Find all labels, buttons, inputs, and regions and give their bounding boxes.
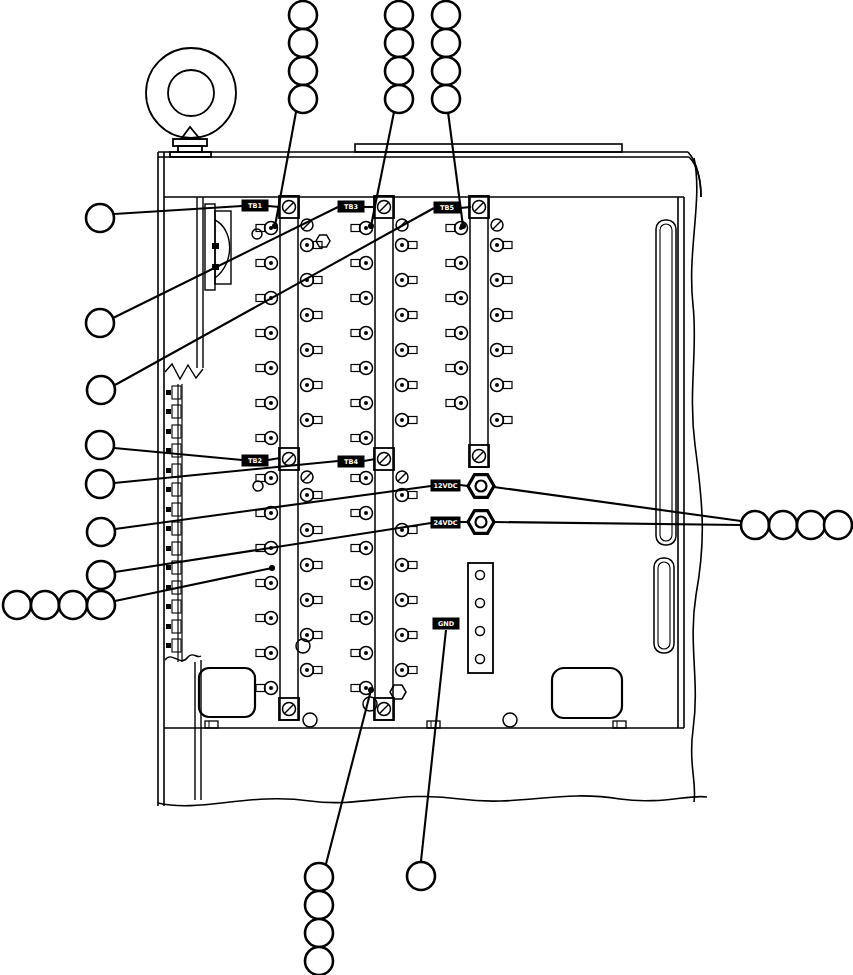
din-terminal-block [172,620,181,633]
terminal-strip-1-terminal-lug-tab [313,667,322,674]
terminal-strip-1-terminal-center [269,436,273,440]
terminal-strip-1-screw-slot [303,473,311,481]
slot-upper [656,220,676,545]
leader-line [326,690,371,864]
label-text-tb3: TB3 [344,203,358,211]
callout-balloon-left-singles [87,561,115,589]
terminal-strip-2-terminal-lug-tab [408,382,417,389]
leader-attach-dot [368,687,374,693]
door-hinge [205,204,231,290]
terminal-strip-1-terminal-center [305,348,309,352]
ground-plate-hole [476,627,485,636]
terminal-strip-2-terminal-lug-tab [351,260,360,267]
terminal-strip-1-terminal-lug-tab [256,260,265,267]
terminal-strip-3-terminal-center [459,261,463,265]
callout-balloon-top-column-3 [432,85,460,113]
callout-balloon-right-row [797,511,825,539]
top-lip [355,144,622,152]
terminal-strip-3-terminal-center [459,296,463,300]
callout-balloon-bottom-column [305,947,333,975]
leader-line [115,208,434,385]
terminal-strip-1-terminal-center [269,261,273,265]
terminal-strip-1-mount-screw-slot [285,455,294,464]
terminal-strip-1-terminal-center [305,383,309,387]
terminal-strip-2-screw-slot [398,473,406,481]
terminal-strip-2-terminal-lug-tab [351,580,360,587]
terminal-strip-2-terminal-lug-tab [351,475,360,482]
break-wave-small [165,655,201,661]
break-line-bottom [158,796,707,806]
terminal-strip-3-terminal-lug-tab [503,242,512,249]
din-terminal-marker [166,409,171,414]
terminal-strip-2-terminal-center [364,261,368,265]
leader-line [460,207,471,208]
wiring-diagram: TB1TB3TB5TB2TB412VDC24VDCGND [0,0,853,975]
terminal-strip-1-terminal-lug-tab [313,382,322,389]
terminal-strip-2-terminal-lug-tab [351,330,360,337]
callout-balloon-top-column-1 [289,1,317,29]
callout-balloon-bottom-column [305,919,333,947]
terminal-strip-1-terminal-lug-tab [256,295,265,302]
terminal-strip-3-terminal-lug-tab [446,295,455,302]
terminal-strip-2-terminal-lug-tab [351,650,360,657]
callout-balloon-top-column-3 [432,57,460,85]
terminal-strip-3-mount-screw-slot [475,203,484,212]
callout-balloon-top-column-1 [289,29,317,57]
leader-line [114,206,242,214]
din-terminal-marker [166,604,171,609]
terminal-strip-2-terminal-lug-tab [408,417,417,424]
terminal-strip-3-terminal-lug-tab [503,417,512,424]
terminal-strip-2-terminal-center [400,278,404,282]
leader-attach-dot [269,565,275,571]
terminal-strip-1-terminal-lug-tab [313,277,322,284]
terminal-strip-2-mount-screw-slot [380,705,389,714]
terminal-strip-1-terminal-lug-tab [256,400,265,407]
leader-attach-dot [272,223,278,229]
panel-screw-hole [252,229,262,239]
terminal-strip-3-terminal-lug-tab [503,277,512,284]
terminal-strip-2-terminal-center [364,401,368,405]
terminal-strip-2-terminal-center [400,418,404,422]
terminal-strip-2-terminal-lug-tab [351,615,360,622]
terminal-strip-2-terminal-lug-tab [408,312,417,319]
callout-balloon-top-column-3 [432,1,460,29]
terminal-strip-2-mount-screw-slot [380,455,389,464]
terminal-strip-2-terminal-lug-tab [408,597,417,604]
terminal-strip-2-terminal-center [364,581,368,585]
callout-balloon-bottom-column [305,863,333,891]
terminal-strip-2-terminal-center [364,436,368,440]
leader-line [275,112,296,226]
terminal-strip-1-terminal-center [269,476,273,480]
callout-balloon-top-column-3 [432,29,460,57]
leader-attach-dot [368,223,374,229]
terminal-strip-1-terminal-center [269,581,273,585]
terminal-strip-3-terminal-lug-tab [446,400,455,407]
callout-balloon-top-column-2 [385,57,413,85]
callout-balloon-left-row [87,591,115,619]
terminal-strip-3-terminal-lug-tab [503,347,512,354]
terminal-strip-2-mount-screw-slot [380,203,389,212]
terminal-strip-1-terminal-lug-tab [256,580,265,587]
slot-lower [654,558,674,653]
callout-balloon-left-singles [86,431,114,459]
terminal-strip-3-mount-screw-slot [475,452,484,461]
terminal-strip-3-screw-slot [493,221,501,229]
terminal-strip-1-terminal-center [305,668,309,672]
callout-balloon-top-column-1 [289,85,317,113]
cutout-right-rounded [552,668,622,718]
terminal-strip-2-terminal-center [364,226,368,230]
ground-plate-hole [476,571,485,580]
voltage-jack-hex [468,475,494,498]
din-terminal-marker [166,468,171,473]
terminal-strip-3-terminal-lug-tab [503,382,512,389]
terminal-strip-2-terminal-lug-tab [408,242,417,249]
terminal-strip-2-terminal-lug-tab [351,435,360,442]
din-terminal-block [172,405,181,418]
terminal-strip-1-terminal-lug-tab [256,330,265,337]
terminal-strip-2-terminal-lug-tab [408,632,417,639]
terminal-strip-2-terminal-center [364,296,368,300]
terminal-strip-3-terminal-lug-tab [446,260,455,267]
terminal-strip-1-terminal-lug-tab [313,632,322,639]
voltage-jack-hex [468,511,494,534]
terminal-strip-1-terminal-lug-tab [256,650,265,657]
terminal-strip-2-terminal-center [400,598,404,602]
terminal-strip-2-terminal-center [400,668,404,672]
ground-plate-hole [476,599,485,608]
terminal-strip-2-terminal-lug-tab [408,347,417,354]
label-text-tb2: TB2 [248,457,262,465]
terminal-strip-1-terminal-lug-tab [256,615,265,622]
break-line-right [691,158,702,802]
din-terminal-block [172,639,181,652]
callout-balloon-bottom-single [407,862,435,890]
din-terminal-marker [166,546,171,551]
callout-balloon-left-singles [87,518,115,546]
callout-balloon-left-row [3,591,31,619]
terminal-strip-2-terminal-lug-tab [408,277,417,284]
leader-line [421,630,446,861]
callout-balloon-top-column-2 [385,85,413,113]
wiring-diagram-page: TB1TB3TB5TB2TB412VDC24VDCGND [0,0,853,975]
terminal-strip-1-terminal-center [305,243,309,247]
callout-balloon-right-row [824,511,852,539]
din-terminal-marker [166,565,171,570]
terminal-strip-2-terminal-center [364,511,368,515]
terminal-strip-1-terminal-lug-tab [256,365,265,372]
terminal-strip-2-terminal-lug-tab [408,562,417,569]
din-terminal-block [172,425,181,438]
terminal-strip-2-terminal-center [364,546,368,550]
terminal-strip-1-terminal-center [305,313,309,317]
callout-balloon-right-row [741,511,769,539]
terminal-strip-3-bar [470,196,488,467]
callout-balloon-right-row [769,511,797,539]
terminal-strip-3-terminal-center [495,243,499,247]
din-terminal-marker [166,487,171,492]
leader-line [494,522,741,525]
panel-screw-hole [303,713,317,727]
terminal-strip-2-terminal-center [364,616,368,620]
terminal-strip-1-terminal-lug-tab [256,685,265,692]
terminal-strip-1-terminal-lug-tab [313,347,322,354]
leader-line [115,568,272,601]
terminal-strip-2-terminal-lug-tab [408,667,417,674]
terminal-strip-1-terminal-lug-tab [313,417,322,424]
terminal-strip-3-terminal-lug-tab [446,225,455,232]
terminal-strip-2-terminal-center [400,313,404,317]
callout-balloon-top-column-2 [385,29,413,57]
terminal-strip-2-terminal-center [400,348,404,352]
terminal-strip-3-terminal-center [495,278,499,282]
terminal-strip-2-terminal-lug-tab [408,492,417,499]
rail-tab [427,721,440,728]
din-terminal-block [172,542,181,555]
leader-attach-dot [460,223,466,229]
terminal-strip-3-terminal-center [495,418,499,422]
callout-balloon-top-column-1 [289,57,317,85]
label-text-gnd: GND [438,620,455,628]
rail-tab [613,721,626,728]
terminal-strip-1-terminal-lug-tab [256,435,265,442]
voltage-jack-center [476,517,487,528]
terminal-strip-3-terminal-center [495,383,499,387]
callout-balloon-left-singles [87,376,115,404]
terminal-strip-2-terminal-center [400,563,404,567]
label-text-tb5: TB5 [440,204,454,212]
terminal-strip-1-terminal-center [305,563,309,567]
terminal-strip-3-terminal-lug-tab [446,365,455,372]
panel-screw-hole [253,481,263,491]
terminal-strip-2-terminal-lug-tab [351,295,360,302]
din-terminal-block [172,483,181,496]
din-terminal-block [172,600,181,613]
din-terminal-block [172,464,181,477]
label-text-tb1: TB1 [248,202,262,210]
door-edge [165,197,203,800]
terminal-strip-1-terminal-center [305,633,309,637]
din-terminal-marker [166,526,171,531]
voltage-jack-center [476,481,487,492]
terminal-strip-2-terminal-center [400,493,404,497]
terminal-strip-2-terminal-center [400,383,404,387]
din-terminal-marker [166,643,171,648]
terminal-strip-1-terminal-center [269,331,273,335]
terminal-strip-3-terminal-lug-tab [446,330,455,337]
terminal-strip-1-terminal-center [269,511,273,515]
callout-balloon-left-singles [86,204,114,232]
leader-line [494,487,741,521]
panel-outline [158,152,701,806]
din-terminal-marker [166,507,171,512]
din-terminal-block [172,503,181,516]
terminal-strip-1-terminal-lug-tab [313,492,322,499]
terminal-strip-1-terminal-lug-tab [313,527,322,534]
label-text-24vdc: 24VDC [433,519,457,527]
terminal-strip-2-terminal-lug-tab [351,510,360,517]
terminal-strip-1-terminal-center [305,418,309,422]
callout-balloon-bottom-column [305,891,333,919]
terminal-strip-2-terminal-center [400,633,404,637]
panel-screw-hole [503,713,517,727]
terminal-strip-2-terminal-lug-tab [351,225,360,232]
terminal-strip-3-terminal-center [459,366,463,370]
lifting-eye [146,48,236,157]
din-terminal-block [172,386,181,399]
leader-line [268,206,280,207]
terminal-strip-1-terminal-center [305,528,309,532]
callout-balloon-left-singles [86,470,114,498]
leader-line [113,207,338,318]
terminal-strip-1-terminal-center [269,686,273,690]
rail-tab [205,721,218,728]
leader-line [115,486,431,529]
terminal-strip-2-terminal-lug-tab [351,545,360,552]
terminal-strip-2-terminal-lug-tab [351,685,360,692]
terminal-strip-3-terminal-center [495,348,499,352]
callout-balloon-top-column-2 [385,1,413,29]
terminal-strip-2-terminal-center [364,651,368,655]
terminal-strip-1-terminal-center [269,401,273,405]
din-terminal-marker [166,624,171,629]
terminal-strip-1-terminal-lug-tab [313,312,322,319]
terminal-strip-3-terminal-center [459,401,463,405]
terminal-strip-1-terminal-center [269,651,273,655]
terminal-strip-2-terminal-lug-tab [351,400,360,407]
terminal-strip-1-terminal-lug-tab [313,562,322,569]
terminal-strip-1-terminal-center [305,598,309,602]
terminal-strip-2-terminal-center [400,243,404,247]
terminal-strip-2-terminal-center [364,366,368,370]
callout-balloon-left-row [31,591,59,619]
din-terminal-marker [166,429,171,434]
terminal-strip-2-terminal-lug-tab [351,365,360,372]
terminal-strip-1-mount-screw-slot [285,203,294,212]
terminal-strip-3-terminal-center [459,331,463,335]
terminal-strip-1-terminal-center [269,616,273,620]
cutout-left-rounded [199,668,255,717]
terminal-strip-2-terminal-center [364,686,368,690]
terminal-strip-3-terminal-center [495,313,499,317]
terminal-strip-1-terminal-center [305,493,309,497]
leader-line [115,523,431,572]
terminal-strip-1-terminal-center [269,366,273,370]
callout-balloon-left-row [59,591,87,619]
din-terminal-marker [166,390,171,395]
label-text-tb4: TB4 [344,458,358,466]
terminal-strip-2-terminal-center [364,476,368,480]
terminal-strip-1-terminal-lug-tab [313,597,322,604]
terminal-strip-3-terminal-lug-tab [503,312,512,319]
ground-plate-hole [476,655,485,664]
terminal-strip-2-terminal-lug-tab [408,527,417,534]
label-text-12vdc: 12VDC [433,482,457,490]
terminal-strip-1-mount-screw-slot [285,705,294,714]
leader-line [460,485,468,486]
din-terminal-block [172,522,181,535]
callout-balloon-left-singles [86,309,114,337]
terminal-strip-2-terminal-center [364,331,368,335]
